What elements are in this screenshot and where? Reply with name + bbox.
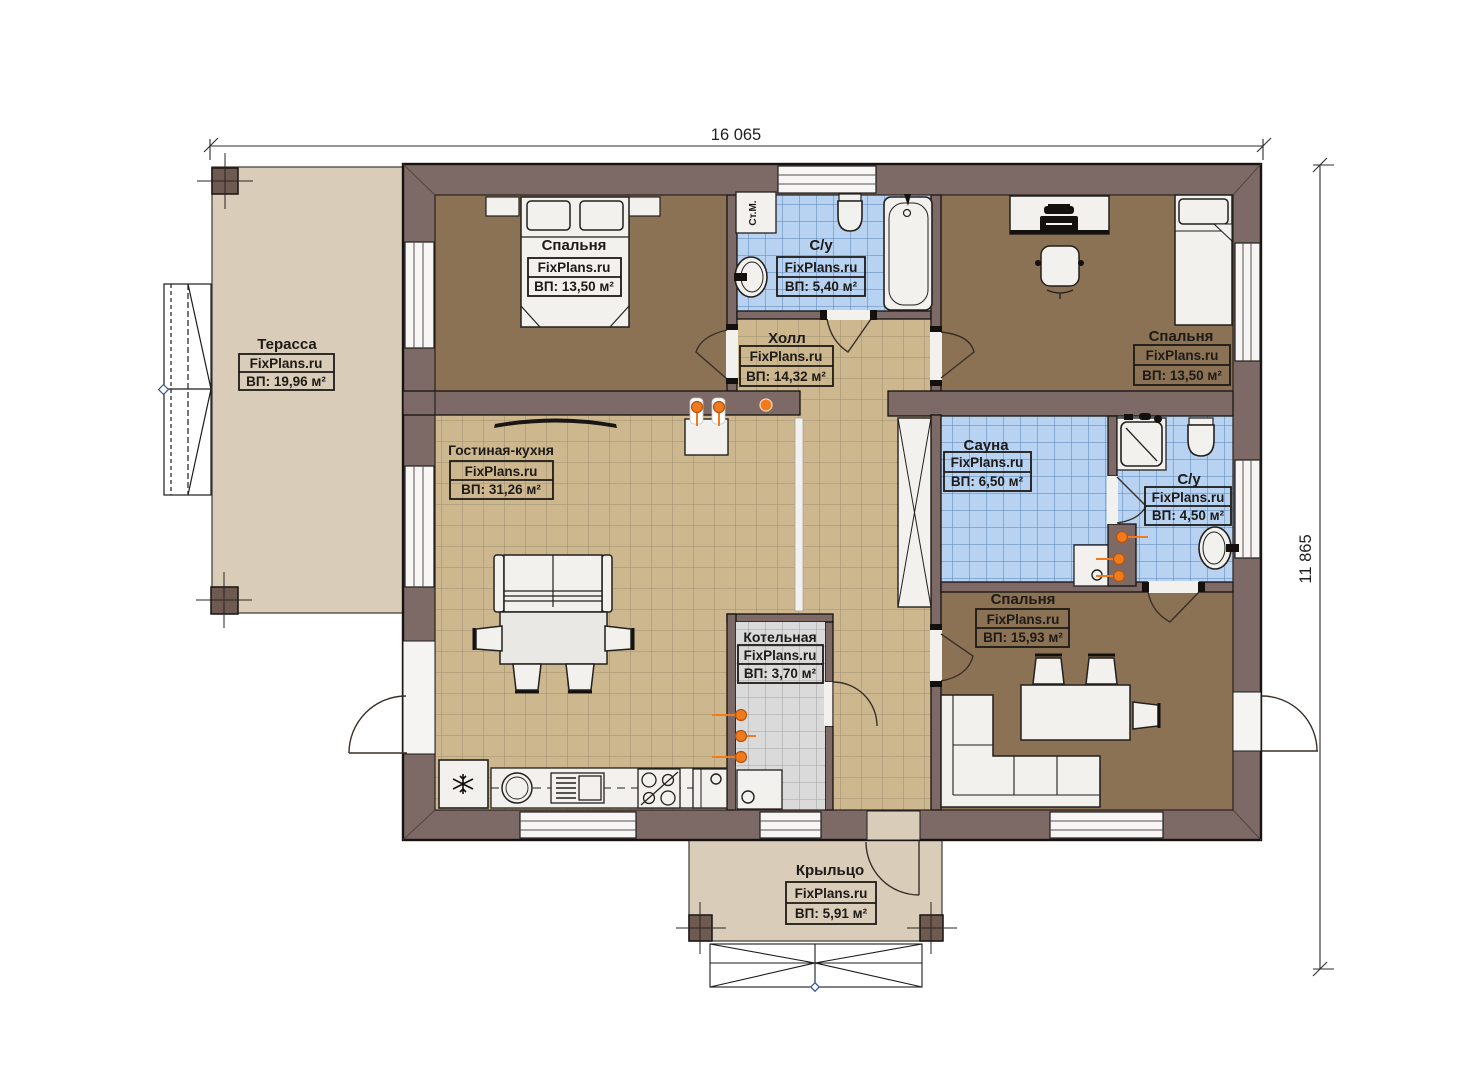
svg-text:FixPlans.ru: FixPlans.ru xyxy=(987,612,1060,627)
svg-text:ВП: 5,40 м²: ВП: 5,40 м² xyxy=(785,279,858,294)
svg-text:ВП: 13,50 м²: ВП: 13,50 м² xyxy=(534,279,614,294)
svg-text:FixPlans.ru: FixPlans.ru xyxy=(1152,490,1225,505)
svg-text:ВП: 13,50 м²: ВП: 13,50 м² xyxy=(1142,368,1222,383)
svg-text:Спальня: Спальня xyxy=(542,237,607,254)
svg-text:С/у: С/у xyxy=(809,237,833,254)
svg-text:ВП: 5,91 м²: ВП: 5,91 м² xyxy=(795,906,868,921)
svg-text:Гостиная-кухня: Гостиная-кухня xyxy=(448,443,554,458)
svg-text:ВП: 15,93 м²: ВП: 15,93 м² xyxy=(983,630,1063,645)
svg-text:ВП: 14,32 м²: ВП: 14,32 м² xyxy=(746,369,826,384)
svg-text:FixPlans.ru: FixPlans.ru xyxy=(785,260,858,275)
svg-text:Ст.М.: Ст.М. xyxy=(748,200,759,225)
svg-text:ВП: 3,70 м²: ВП: 3,70 м² xyxy=(744,666,817,681)
svg-text:FixPlans.ru: FixPlans.ru xyxy=(744,648,817,663)
svg-text:Спальня: Спальня xyxy=(991,591,1056,608)
svg-text:16 065: 16 065 xyxy=(711,126,761,144)
svg-text:Котельная: Котельная xyxy=(743,629,816,645)
svg-text:FixPlans.ru: FixPlans.ru xyxy=(538,260,611,275)
svg-text:11 865: 11 865 xyxy=(1297,534,1315,583)
svg-text:FixPlans.ru: FixPlans.ru xyxy=(951,455,1024,470)
svg-text:ВП: 19,96 м²: ВП: 19,96 м² xyxy=(246,374,326,389)
svg-text:С/у: С/у xyxy=(1177,471,1201,488)
svg-text:FixPlans.ru: FixPlans.ru xyxy=(795,886,868,901)
svg-text:ВП: 31,26 м²: ВП: 31,26 м² xyxy=(461,482,541,497)
svg-text:Спальня: Спальня xyxy=(1149,328,1214,345)
svg-text:Холл: Холл xyxy=(768,330,806,347)
svg-text:FixPlans.ru: FixPlans.ru xyxy=(465,464,538,479)
svg-text:ВП: 4,50 м²: ВП: 4,50 м² xyxy=(1152,508,1225,523)
svg-text:FixPlans.ru: FixPlans.ru xyxy=(250,356,323,371)
svg-text:Терасса: Терасса xyxy=(257,336,317,353)
svg-text:ВП: 6,50 м²: ВП: 6,50 м² xyxy=(951,474,1024,489)
svg-text:FixPlans.ru: FixPlans.ru xyxy=(750,349,823,364)
svg-text:FixPlans.ru: FixPlans.ru xyxy=(1146,348,1219,363)
svg-text:Крыльцо: Крыльцо xyxy=(796,862,864,879)
